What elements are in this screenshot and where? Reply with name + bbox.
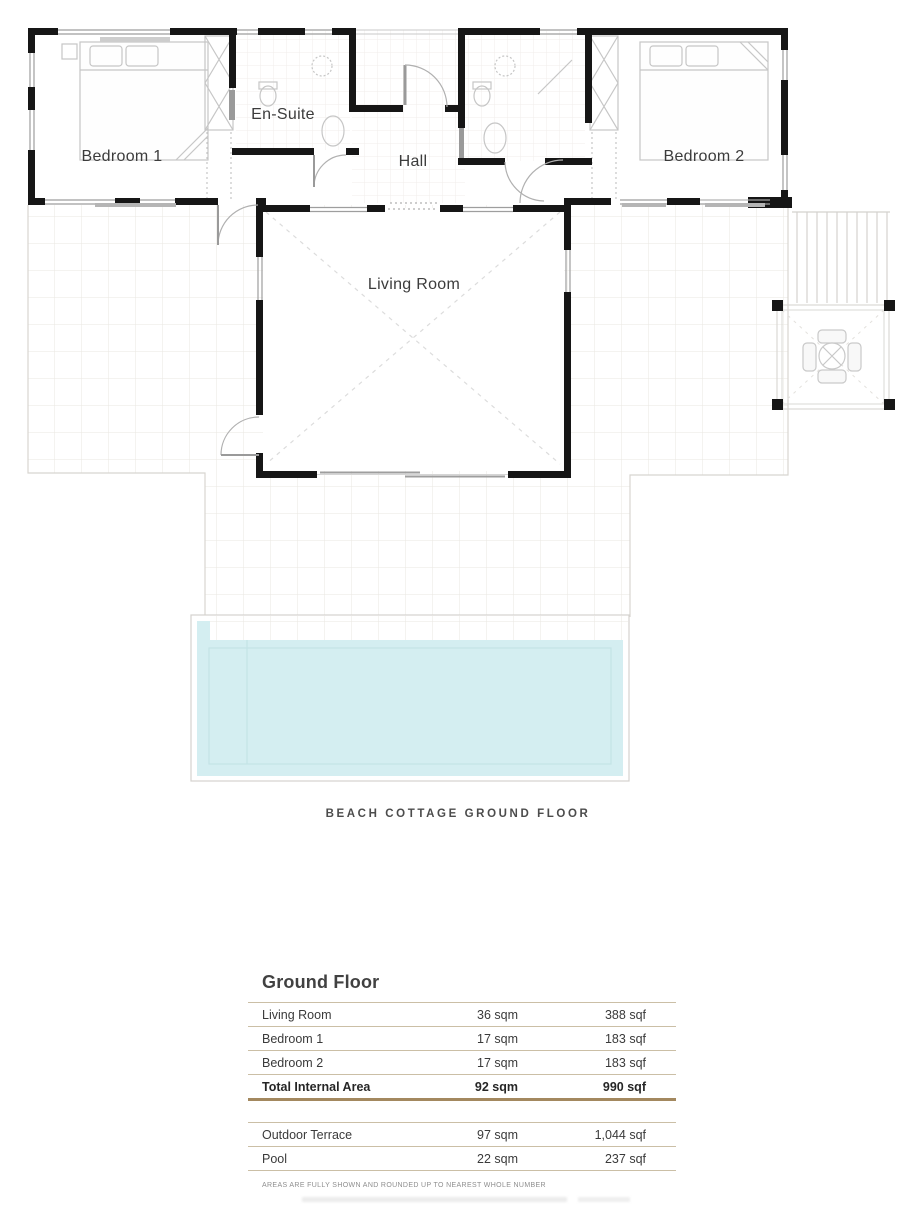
room-name-cell: Total Internal Area [248,1080,398,1094]
sqm-cell: 92 sqm [398,1080,524,1094]
pool-water [197,621,623,776]
plan-caption: BEACH COTTAGE GROUND FLOOR [0,808,916,820]
room-label-bedroom1: Bedroom 1 [82,148,163,165]
internal-area-table: Living Room 36 sqm 388 sqf Bedroom 1 17 … [248,1002,676,1101]
bed-icon [62,42,208,160]
table-row: Bedroom 1 17 sqm 183 sqf [248,1027,676,1051]
sqm-cell: 17 sqm [398,1056,524,1070]
room-name-cell: Bedroom 1 [248,1032,398,1046]
sqf-cell: 1,044 sqf [524,1128,676,1142]
sqf-cell: 990 sqf [524,1080,676,1094]
room-label-ensuite: En-Suite [251,106,315,123]
sqm-cell: 22 sqm [398,1152,524,1166]
sqm-cell: 36 sqm [398,1008,524,1022]
table-row: Bedroom 2 17 sqm 183 sqf [248,1051,676,1075]
table-row: Pool 22 sqm 237 sqf [248,1147,676,1171]
area-table-footnote: AREAS ARE FULLY SHOWN AND ROUNDED UP TO … [248,1182,676,1189]
room-name-cell: Pool [248,1152,398,1166]
pergola [772,300,895,410]
room-name-cell: Outdoor Terrace [248,1128,398,1142]
sqf-cell: 237 sqf [524,1152,676,1166]
room-name-cell: Living Room [248,1008,398,1022]
sqf-cell: 388 sqf [524,1008,676,1022]
stairs [792,212,890,303]
table-row: Outdoor Terrace 97 sqm 1,044 sqf [248,1122,676,1147]
sqm-cell: 97 sqm [398,1128,524,1142]
sqm-cell: 17 sqm [398,1032,524,1046]
area-table-title: Ground Floor [262,972,676,993]
wardrobe-icon [205,36,233,200]
floor-plan: Bedroom 1 En-Suite Hall Bedroom 2 Living… [0,0,916,805]
cropped-text-remnant [302,1197,567,1202]
outdoor-area-table: Outdoor Terrace 97 sqm 1,044 sqf Pool 22… [248,1122,676,1171]
sqf-cell: 183 sqf [524,1056,676,1070]
cropped-text-remnant [578,1197,630,1202]
sqf-cell: 183 sqf [524,1032,676,1046]
room-name-cell: Bedroom 2 [248,1056,398,1070]
room-label-hall: Hall [399,153,428,170]
room-label-living: Living Room [368,276,460,293]
room-label-bedroom2: Bedroom 2 [664,148,745,165]
wardrobe-icon-2 [590,36,618,200]
total-row: Total Internal Area 92 sqm 990 sqf [248,1075,676,1101]
area-table: Ground Floor Living Room 36 sqm 388 sqf … [248,972,676,1189]
bed-icon-2 [640,42,768,160]
pool [191,615,629,781]
table-row: Living Room 36 sqm 388 sqf [248,1002,676,1027]
